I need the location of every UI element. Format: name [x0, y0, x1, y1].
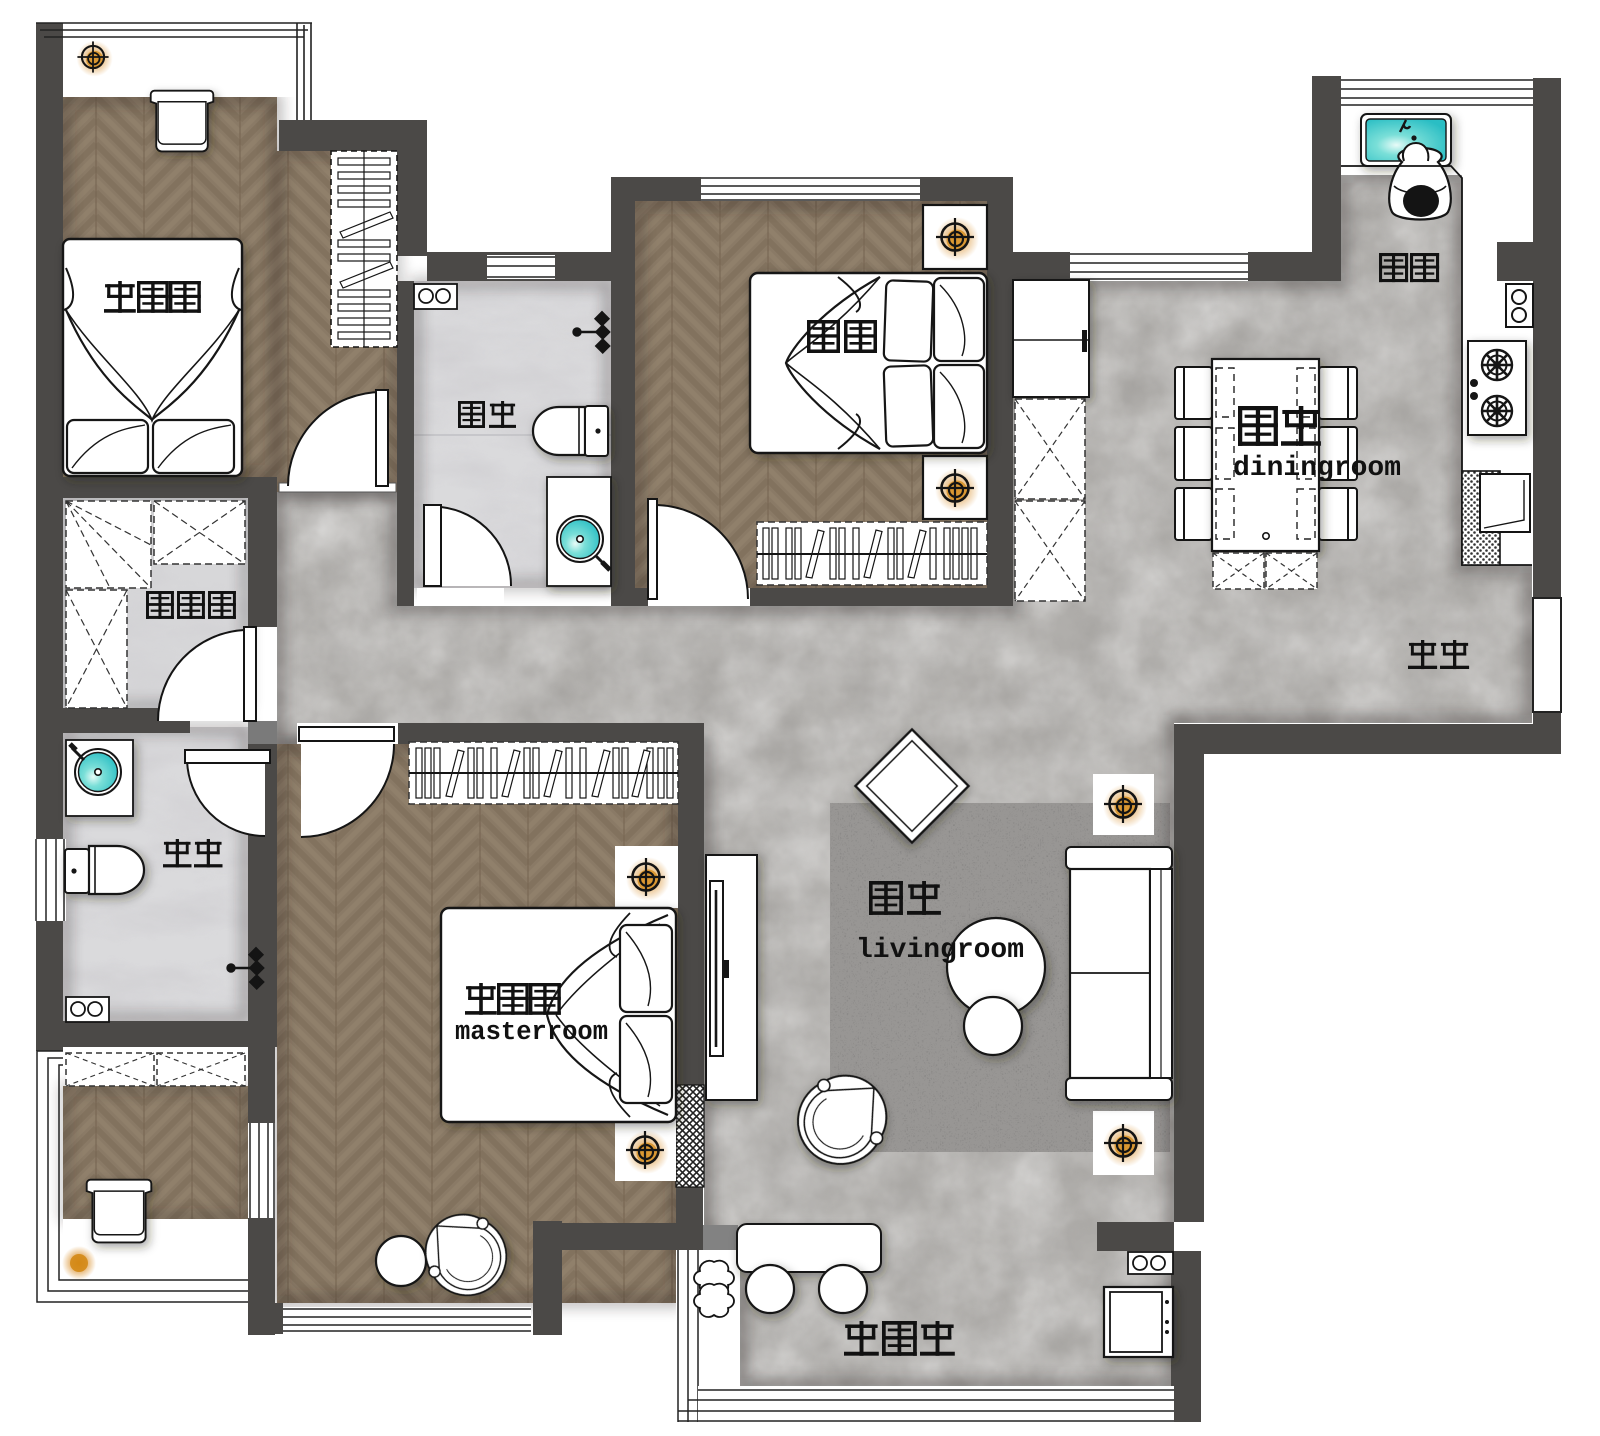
svg-text:diningroom: diningroom	[1233, 453, 1401, 484]
svg-text:livingroom: livingroom	[856, 935, 1024, 966]
svg-text:masterroom: masterroom	[455, 1018, 608, 1047]
